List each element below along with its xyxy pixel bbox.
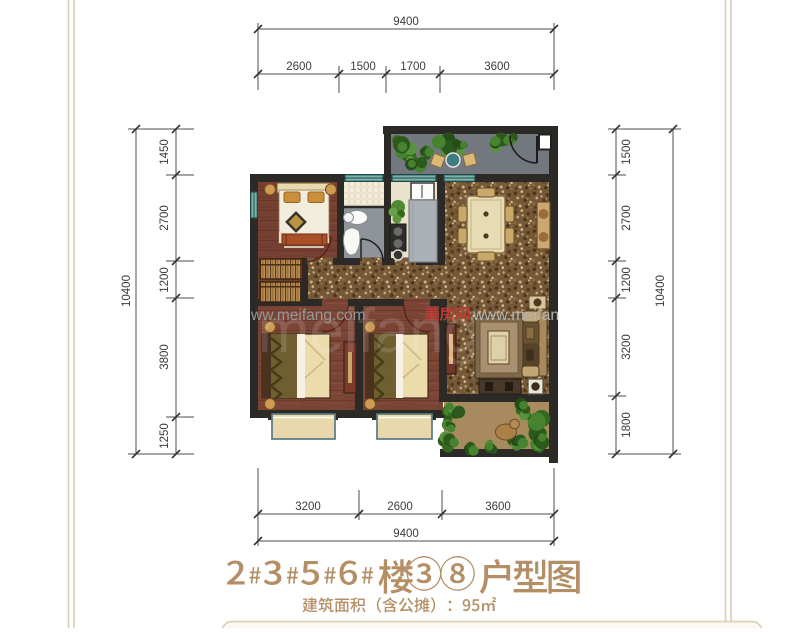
svg-text:1500: 1500 xyxy=(621,139,633,165)
svg-text:9400: 9400 xyxy=(393,16,419,28)
svg-text:2600: 2600 xyxy=(286,61,312,73)
svg-text:ww.meifang.com: ww.meifang.com xyxy=(250,307,366,324)
svg-text:3200: 3200 xyxy=(295,501,321,513)
svg-text:10400: 10400 xyxy=(655,275,667,307)
svg-text:3600: 3600 xyxy=(484,61,510,73)
svg-text:www.meifan: www.meifan xyxy=(472,307,559,324)
svg-text:9400: 9400 xyxy=(393,528,419,540)
svg-text:1700: 1700 xyxy=(400,61,426,73)
svg-text:10400: 10400 xyxy=(121,275,133,307)
svg-text:1250: 1250 xyxy=(159,423,171,449)
svg-text:3200: 3200 xyxy=(621,334,633,360)
svg-text:1500: 1500 xyxy=(350,61,376,73)
svg-text:3800: 3800 xyxy=(159,344,171,370)
svg-text:1450: 1450 xyxy=(159,139,171,165)
svg-text:3600: 3600 xyxy=(485,501,511,513)
svg-text:2700: 2700 xyxy=(621,205,633,231)
svg-text:1200: 1200 xyxy=(621,267,633,293)
svg-text:1800: 1800 xyxy=(621,412,633,438)
svg-text:1200: 1200 xyxy=(159,267,171,293)
svg-text:2700: 2700 xyxy=(159,205,171,231)
svg-text:2600: 2600 xyxy=(387,501,413,513)
